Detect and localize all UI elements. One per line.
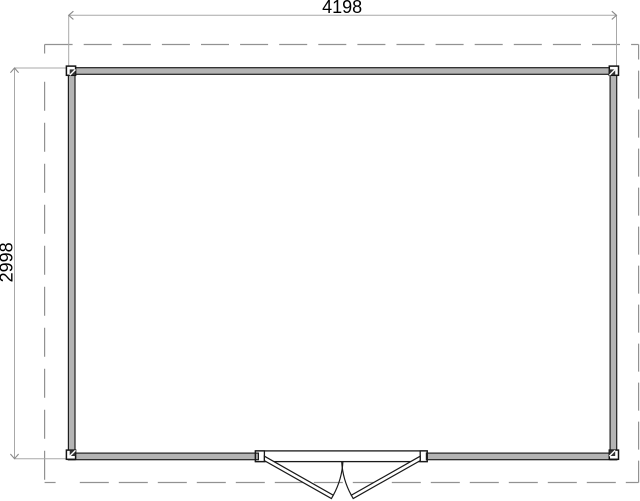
svg-text:2998: 2998: [0, 242, 16, 282]
svg-text:4198: 4198: [322, 0, 362, 17]
